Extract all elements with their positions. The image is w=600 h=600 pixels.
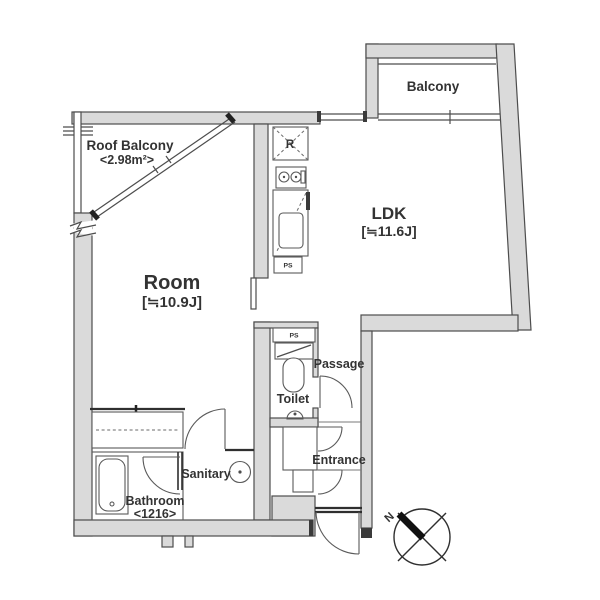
roof-balcony-area-label: <2.98m²> [100, 153, 154, 167]
wall-stub-1 [162, 536, 173, 547]
room-label: Room [144, 272, 201, 294]
compass-icon: N [383, 509, 450, 565]
balcony-parapet [366, 44, 497, 58]
wall-stub-2 [185, 536, 193, 547]
wall-room-kitchen [254, 124, 268, 278]
wall-toilet-west [254, 322, 270, 520]
counter-handle [306, 192, 310, 210]
wall-end-cap-south [309, 520, 313, 536]
kitchen-sink-icon [273, 190, 310, 256]
compass-north-label: N [383, 511, 397, 525]
stove-icon [276, 167, 306, 188]
ldk-size-label: [≒11.6J] [361, 223, 416, 239]
bathroom-label: Bathroom [125, 494, 184, 508]
sanitary-label: Sanitary [181, 467, 230, 481]
balcony-label: Balcony [407, 79, 460, 94]
cabinet-door-arc-upper [318, 427, 342, 451]
wall-toilet-north [254, 322, 318, 328]
room-sliding-door [251, 278, 256, 309]
entrance-label: Entrance [312, 453, 366, 467]
bathroom-door-arc [143, 457, 180, 494]
shoe-cabinet-lower [293, 470, 313, 492]
room-size-label: [≒10.9J] [142, 294, 202, 311]
wall-ldk-south [361, 315, 518, 331]
pipe-space-kitchen-label: PS [283, 263, 293, 270]
wall-south [74, 520, 313, 536]
wall-east-slanted [496, 44, 531, 330]
bathroom-size-label: <1216> [134, 507, 176, 521]
sanitary-door-arc [185, 409, 225, 449]
wall-north [72, 112, 320, 124]
front-door [315, 508, 362, 554]
closet [90, 405, 185, 448]
washing-machine-icon [230, 462, 251, 483]
pipe-space-toilet-label: PS [289, 333, 299, 340]
floor-plan: N Roof Balcony <2.98m²> Balcony LDK [≒11… [0, 0, 600, 600]
wall-west [74, 213, 92, 536]
roof-balcony-label: Roof Balcony [86, 138, 173, 153]
balcony-sliding-window [378, 110, 501, 124]
passage-label: Passage [314, 357, 365, 371]
cabinet-door-arc-lower [318, 470, 342, 494]
ldk-north-window [317, 111, 367, 122]
toilet-door-arc [320, 376, 352, 408]
bathtub-icon [96, 456, 128, 514]
roof-balcony-railing [74, 112, 81, 213]
toilet-label: Toilet [277, 392, 310, 406]
wall-end-cap [361, 528, 372, 538]
floor-plan-drawing: N Roof Balcony <2.98m²> Balcony LDK [≒11… [0, 0, 600, 600]
refrigerator-label: R [286, 139, 295, 151]
ldk-label: LDK [372, 204, 408, 223]
toilet-icon [275, 343, 313, 392]
